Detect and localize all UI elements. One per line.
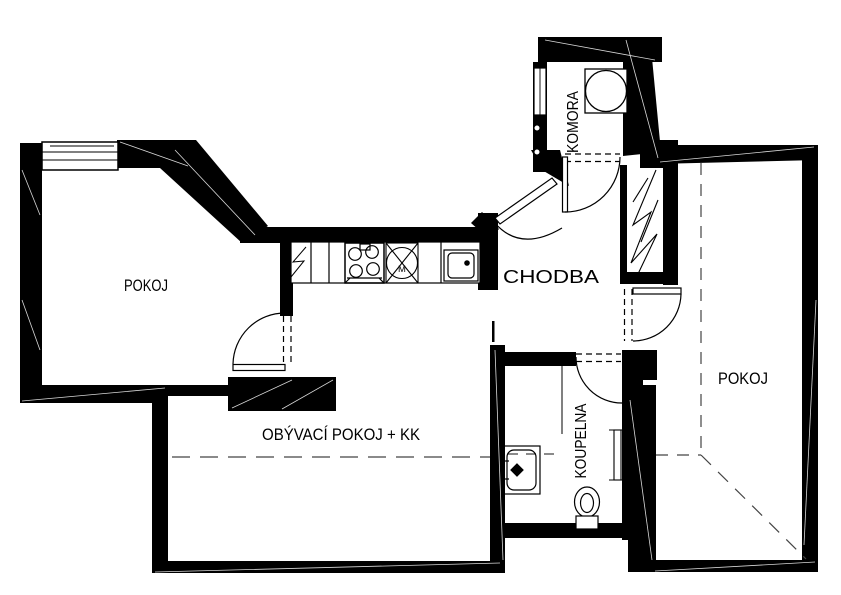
pokoj-left-door xyxy=(233,313,285,371)
toilet-icon xyxy=(575,487,600,529)
ventilation-shaft-icon xyxy=(631,170,658,274)
room-label-obyvaci-pokoj: OBÝVACÍ POKOJ + KK xyxy=(262,425,421,444)
floor-plan-canvas: M POKOJ OBÝVACÍ POKOJ + KK xyxy=(0,0,841,595)
entrance-door xyxy=(494,178,562,239)
wall-segment xyxy=(497,352,576,366)
room-label-pokoj-left: POKOJ xyxy=(124,276,168,295)
wall-segment xyxy=(20,143,42,403)
room-label-komora: KOMORA xyxy=(565,90,582,153)
wall-segment xyxy=(152,388,168,573)
windows xyxy=(42,68,546,170)
room-label-koupelna: KOUPELNA xyxy=(573,403,590,479)
walls xyxy=(20,37,818,573)
wall-segment xyxy=(20,385,168,403)
komora-window xyxy=(534,68,546,115)
wall-segment xyxy=(641,350,657,380)
wall-segment xyxy=(628,385,656,572)
dishwasher-label: M xyxy=(398,264,406,275)
wall-segment xyxy=(663,160,678,285)
wall-segment xyxy=(152,561,505,573)
wall-segment xyxy=(497,523,628,538)
washbasin-icon xyxy=(504,446,540,494)
passage-jamb-line xyxy=(492,321,495,342)
wall-segment xyxy=(240,227,480,243)
floor-plan-drawing: M POKOJ OBÝVACÍ POKOJ + KK xyxy=(0,0,841,595)
wall-segment xyxy=(620,165,627,275)
wall-hatching xyxy=(22,40,816,572)
pokoj-left-window xyxy=(42,142,118,170)
wall-segment-door-block xyxy=(228,377,336,411)
wall-segment xyxy=(490,345,505,573)
koupelna-door xyxy=(562,357,622,434)
wall-segment xyxy=(802,145,818,572)
room-label-pokoj-right: POKOJ xyxy=(718,369,768,388)
wall-segment xyxy=(620,272,667,284)
washing-machine-icon xyxy=(585,69,627,113)
room-label-chodba: CHODBA xyxy=(503,267,599,287)
komora-door xyxy=(563,157,621,212)
pokoj-right-door xyxy=(633,288,681,341)
